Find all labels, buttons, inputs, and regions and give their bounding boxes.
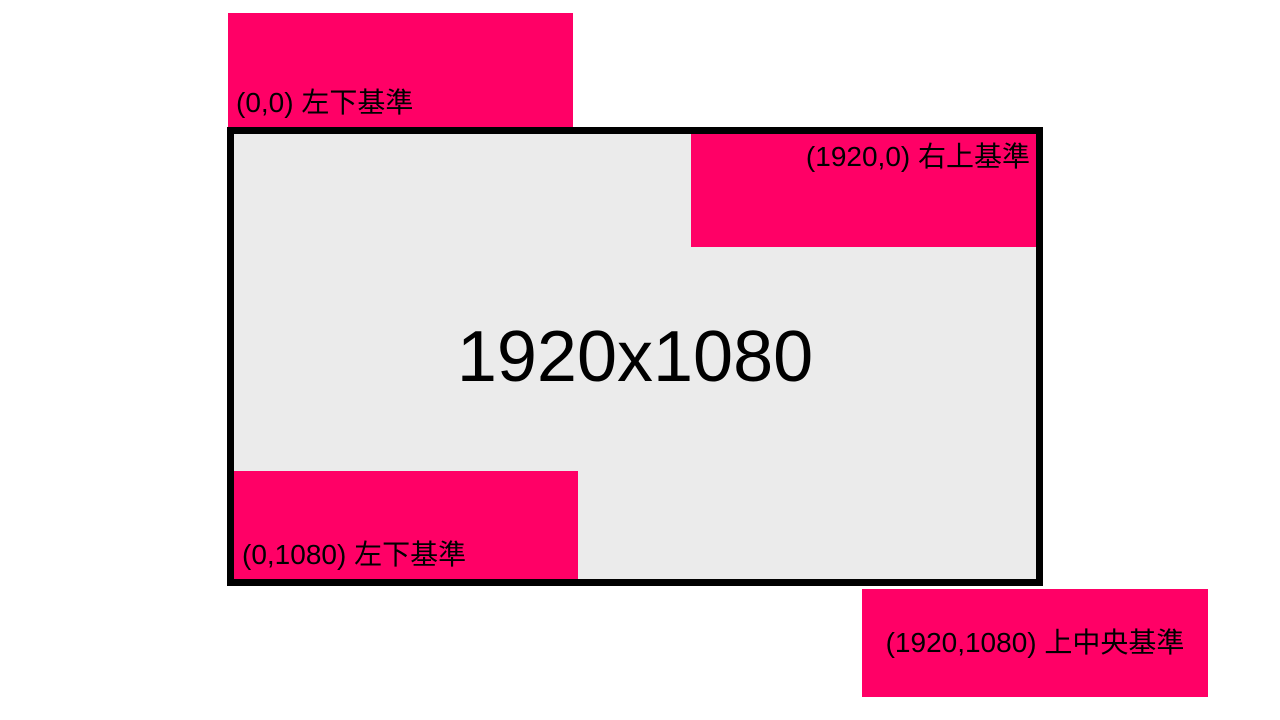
- window-label-top-right-anchor: (1920,0) 右上基準: [806, 141, 1030, 173]
- coordinate-anchor-diagram: 1920x1080 (0,0) 左下基準 (1920,0) 右上基準 (0,10…: [0, 0, 1280, 720]
- window-rect-origin-0-0: (0,0) 左下基準: [228, 13, 573, 127]
- window-rect-1920-0: (1920,0) 右上基準: [691, 134, 1036, 247]
- window-label-top-center-anchor: (1920,1080) 上中央基準: [886, 627, 1185, 659]
- window-label-bottom-left-anchor: (0,0) 左下基準: [236, 87, 413, 119]
- window-rect-0-1080: (0,1080) 左下基準: [234, 471, 578, 579]
- window-label-bottom-left-anchor-2: (0,1080) 左下基準: [242, 539, 466, 571]
- window-rect-1920-1080: (1920,1080) 上中央基準: [862, 589, 1208, 697]
- screen-resolution-label: 1920x1080: [457, 321, 813, 393]
